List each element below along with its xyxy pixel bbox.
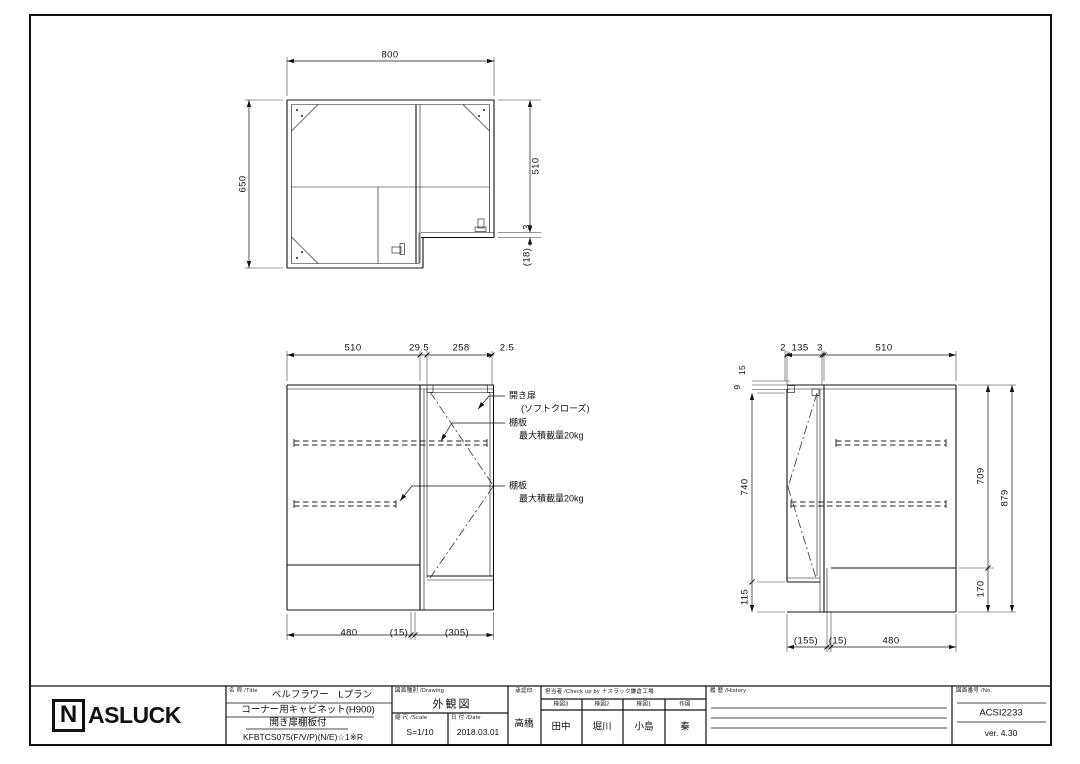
- checker-2-name: 堀川: [592, 722, 611, 732]
- scale-label: 縮 尺 /Scale: [395, 716, 427, 722]
- approver-name: 高橋: [514, 719, 533, 729]
- checker-1-name: 小島: [634, 722, 653, 732]
- plan-dim-width: 800: [381, 50, 398, 60]
- drawing-sheet: 800 650 510 3 (18) 510 29.5 258 2.5 480 …: [0, 0, 1080, 764]
- side-dim-170: 170: [976, 580, 986, 597]
- product-series-name: ベルフラワー Lプラン: [272, 690, 372, 700]
- title-field-label: 名 称 /Title: [229, 689, 258, 695]
- side-dim-709: 709: [976, 467, 986, 484]
- check-col-draw-label: 作図: [679, 702, 691, 708]
- product-option-name: 開き扉棚板付: [269, 718, 326, 728]
- plan-dim-depth: 650: [238, 175, 248, 192]
- side-dim-bottom-2: 480: [882, 636, 899, 646]
- history-label: 履 歴 /History: [710, 689, 746, 695]
- annotation-shelf-2-load: 最大積載量20kg: [519, 495, 584, 504]
- drawing-type-label: 図面種別 /Drawing: [395, 689, 444, 695]
- check-col-3-label: 検図3: [554, 702, 569, 708]
- side-dim-9: 9: [733, 384, 742, 389]
- check-col-1-label: 検図1: [637, 702, 652, 708]
- product-type-name: コーナー用キャビネット(H900): [241, 705, 375, 715]
- side-dim-740: 740: [740, 478, 750, 495]
- side-dim-top-1: 135: [791, 343, 808, 353]
- annotation-door: 開き扉: [509, 392, 536, 401]
- plan-dim-gap: 3: [522, 224, 532, 230]
- annotation-shelf-2: 棚板: [509, 482, 527, 491]
- plan-dim-right-depth: 510: [531, 157, 541, 174]
- product-model-code: KFBTCS075(F/V/P)(N/E)☆1※R: [243, 733, 363, 742]
- side-dim-879: 879: [1000, 489, 1010, 506]
- side-dim-top-0: 2: [780, 343, 786, 353]
- front-dim-top-1: 29.5: [409, 343, 429, 353]
- front-dim-bottom-1: (15): [390, 628, 409, 638]
- front-dim-top-2: 258: [452, 343, 469, 353]
- annotation-shelf-1-load: 最大積載量20kg: [519, 432, 584, 441]
- approval-stamp-label: 承認印: [515, 689, 532, 695]
- nasluck-logo: N ASLUCK: [52, 698, 202, 732]
- front-dim-top-3: 2.5: [500, 343, 514, 353]
- drafter-name: 秦: [680, 722, 690, 732]
- side-dim-bottom-1: (15): [829, 636, 848, 646]
- annotation-door-sub: (ソフトクローズ): [521, 405, 590, 414]
- checker-3-name: 田中: [551, 722, 570, 732]
- front-dim-top-0: 510: [344, 343, 361, 353]
- drawing-no-label: 図面番号 /No.: [956, 689, 992, 695]
- drawing-version: ver. 4.30: [985, 729, 1018, 738]
- annotation-shelf-1: 棚板: [509, 419, 527, 428]
- date-label: 日 付 /Date: [451, 716, 481, 722]
- check-by-label: 担当者 /Check up by ナスラック鎌倉工場: [545, 690, 654, 696]
- side-dim-15: 15: [738, 365, 747, 375]
- drawing-linework: [0, 0, 1080, 764]
- date-value: 2018.03.01: [457, 728, 500, 737]
- side-dim-bottom-0: (155): [794, 636, 818, 646]
- logo-wordmark: ASLUCK: [88, 702, 181, 729]
- plan-dim-door-thk: (18): [522, 248, 532, 267]
- front-dim-bottom-2: (305): [445, 628, 469, 638]
- drawing-no-value: ACSI2233: [979, 708, 1022, 718]
- side-dim-top-3: 510: [875, 343, 892, 353]
- check-col-2-label: 検図2: [595, 702, 610, 708]
- logo-n-mark: N: [52, 699, 85, 732]
- scale-value: S=1/10: [406, 728, 433, 737]
- front-dim-bottom-0: 480: [340, 628, 357, 638]
- side-dim-top-2: 3: [817, 343, 823, 353]
- side-dim-115: 115: [740, 589, 750, 605]
- drawing-type-value: 外観図: [433, 700, 472, 711]
